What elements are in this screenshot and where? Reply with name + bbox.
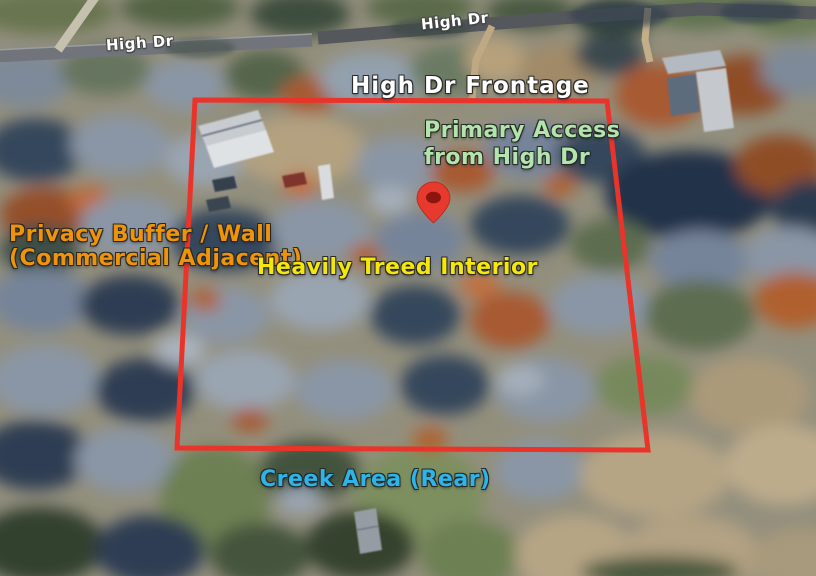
neighbor-roof-2: [667, 74, 700, 116]
annotation-creek-area: Creek Area (Rear): [260, 468, 491, 491]
annotation-primary-access-line2: from High Dr: [424, 144, 620, 171]
annotated-satellite-map: High Dr High Dr High Dr Frontage Primary…: [0, 0, 816, 576]
annotation-privacy-buffer-line1: Privacy Buffer / Wall: [9, 223, 302, 247]
annotation-primary-access: Primary Access from High Dr: [424, 117, 620, 171]
annotation-primary-access-line1: Primary Access: [424, 117, 620, 144]
annotation-high-dr-frontage: High Dr Frontage: [351, 74, 590, 98]
pin-center-dot: [426, 192, 441, 204]
annotation-treed-interior: Heavily Treed Interior: [257, 256, 538, 279]
